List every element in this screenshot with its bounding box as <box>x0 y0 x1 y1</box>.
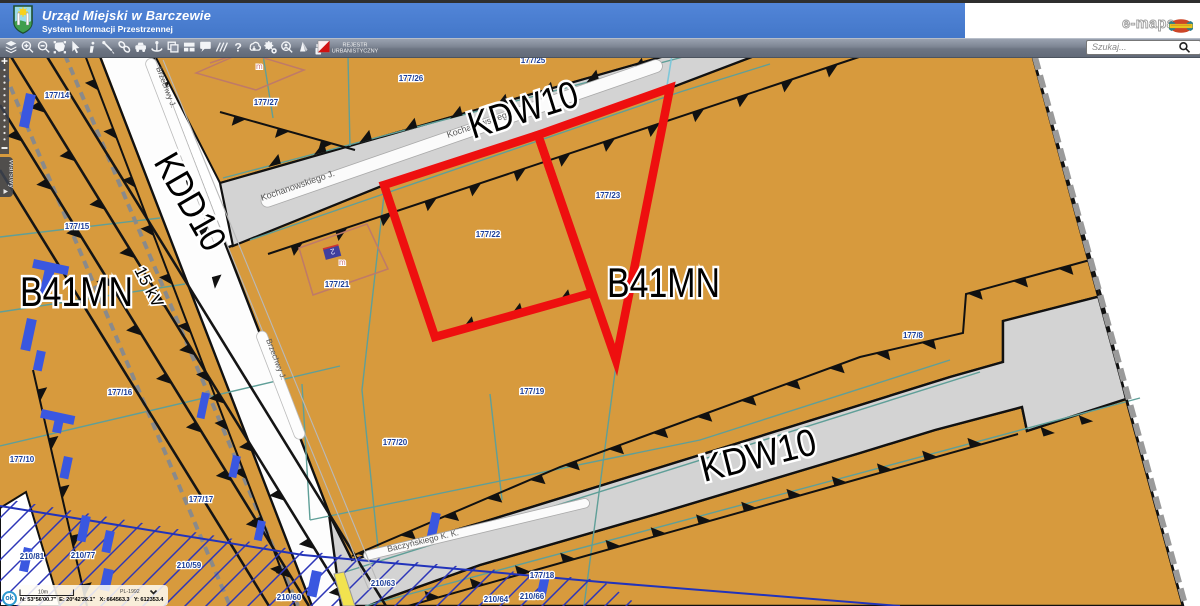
svg-text:210/64: 210/64 <box>484 595 509 604</box>
svg-text:177/8: 177/8 <box>903 331 924 340</box>
svg-text:Warstwy: Warstwy <box>8 160 14 189</box>
svg-text:URBANISTYCZNY: URBANISTYCZNY <box>332 49 379 55</box>
svg-text:210/66: 210/66 <box>520 592 545 601</box>
svg-text:210/59: 210/59 <box>177 561 202 570</box>
svg-text:210/77: 210/77 <box>71 551 96 560</box>
svg-text:177/26: 177/26 <box>399 74 424 83</box>
svg-text:177/15: 177/15 <box>65 222 90 231</box>
svg-text:177/27: 177/27 <box>254 98 279 107</box>
svg-text:210/60: 210/60 <box>277 593 302 602</box>
svg-text:10m: 10m <box>38 590 48 596</box>
svg-text:B41MN: B41MN <box>607 259 720 306</box>
svg-text:177/21: 177/21 <box>325 280 350 289</box>
svg-text:177/17: 177/17 <box>189 495 214 504</box>
svg-text:177/19: 177/19 <box>520 387 545 396</box>
svg-text:B41MN: B41MN <box>20 268 133 315</box>
svg-text:177/22: 177/22 <box>476 230 501 239</box>
svg-text:177/16: 177/16 <box>108 388 133 397</box>
svg-text:177/23: 177/23 <box>596 191 621 200</box>
svg-text:177/20: 177/20 <box>383 438 408 447</box>
svg-text:m: m <box>339 258 346 267</box>
svg-text:177/18: 177/18 <box>530 571 555 580</box>
svg-text:?: ? <box>234 40 242 54</box>
svg-text:210/81: 210/81 <box>20 552 45 561</box>
svg-text:177/10: 177/10 <box>10 455 35 464</box>
svg-text:210/63: 210/63 <box>371 579 396 588</box>
svg-text:177/14: 177/14 <box>45 91 70 100</box>
svg-text:m: m <box>256 62 263 71</box>
